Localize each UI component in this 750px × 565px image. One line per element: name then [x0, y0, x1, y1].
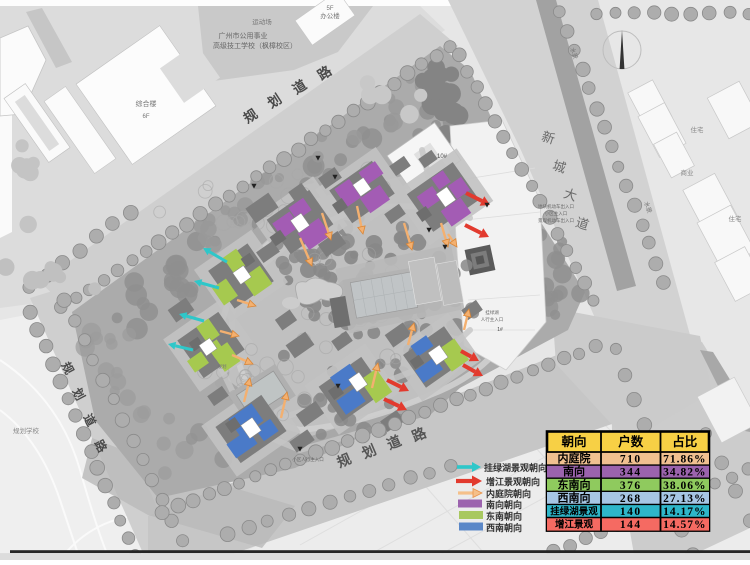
svg-text:广州市公用事业: 广州市公用事业 [219, 31, 268, 40]
svg-text:38.06%: 38.06% [663, 480, 706, 492]
svg-text:710: 710 [620, 454, 642, 466]
svg-text:376: 376 [620, 480, 642, 492]
svg-text:东南向: 东南向 [558, 477, 591, 491]
svg-text:268: 268 [620, 493, 642, 505]
svg-text:小区人行主入口: 小区人行主入口 [292, 456, 324, 463]
svg-text:西南向: 西南向 [558, 490, 591, 504]
svg-text:5F: 5F [326, 6, 333, 12]
svg-text:34.82%: 34.82% [663, 467, 706, 479]
svg-text:挂绿湖景观朝向: 挂绿湖景观朝向 [484, 462, 547, 473]
svg-text:344: 344 [620, 467, 642, 479]
svg-text:10#: 10# [437, 154, 448, 160]
svg-text:27.13%: 27.13% [663, 493, 706, 505]
svg-text:景观机动车出入口: 景观机动车出入口 [538, 217, 574, 224]
svg-text:增江景观朝向: 增江景观朝向 [486, 476, 540, 487]
svg-text:14.17%: 14.17% [663, 506, 706, 518]
svg-text:14.57%: 14.57% [663, 519, 706, 531]
svg-text:南向: 南向 [563, 464, 585, 478]
svg-text:140: 140 [620, 506, 642, 518]
svg-text:小区主入口: 小区主入口 [545, 210, 568, 217]
svg-text:规划学校: 规划学校 [13, 426, 40, 435]
svg-text:地块机动车出入口: 地块机动车出入口 [538, 203, 574, 210]
svg-text:朝向: 朝向 [561, 434, 586, 449]
svg-text:1#: 1# [497, 327, 503, 333]
svg-text:运动场: 运动场 [252, 17, 272, 26]
svg-text:占比: 占比 [672, 434, 698, 449]
svg-text:挂绿湖景观: 挂绿湖景观 [550, 506, 598, 518]
svg-text:西南朝向: 西南朝向 [486, 522, 522, 533]
svg-text:挂绿湖: 挂绿湖 [485, 309, 499, 316]
svg-text:内庭院朝向: 内庭院朝向 [486, 488, 531, 499]
svg-text:东南朝向: 东南朝向 [486, 511, 522, 522]
svg-text:住宅: 住宅 [729, 214, 743, 223]
svg-text:人行主入口: 人行主入口 [481, 316, 504, 323]
svg-text:内庭院: 内庭院 [558, 451, 591, 465]
svg-text:南向朝向: 南向朝向 [486, 499, 522, 510]
svg-text:户数: 户数 [618, 434, 644, 449]
svg-text:高级技工学校（枫樟校区）: 高级技工学校（枫樟校区） [213, 41, 297, 50]
svg-text:综合楼: 综合楼 [136, 99, 157, 108]
svg-text:增江景观: 增江景观 [555, 519, 594, 531]
svg-text:住宅: 住宅 [691, 125, 705, 134]
svg-text:商业: 商业 [681, 168, 695, 177]
svg-text:6F: 6F [142, 114, 149, 120]
svg-text:71.86%: 71.86% [663, 454, 706, 466]
svg-text:规划: 规划 [218, 363, 227, 370]
svg-text:办公楼: 办公楼 [320, 11, 340, 20]
svg-text:144: 144 [620, 519, 642, 531]
